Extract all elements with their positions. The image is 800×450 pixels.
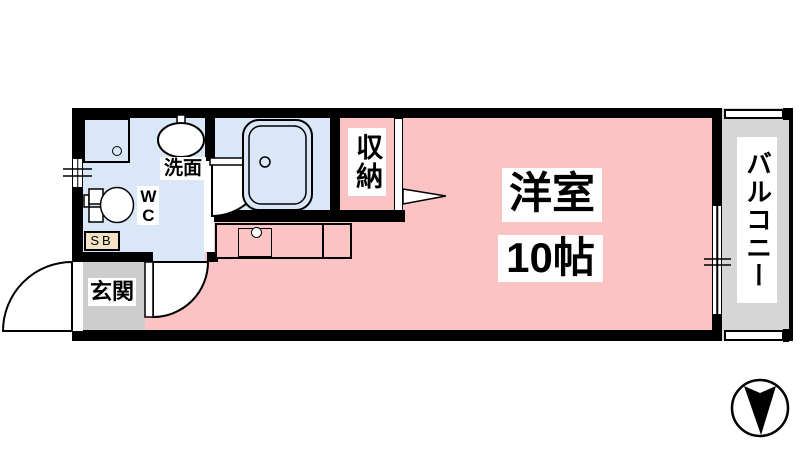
main-room-size-label: 10帖 xyxy=(498,235,603,282)
entrance-label: 玄関 xyxy=(88,278,136,306)
bathtub-icon xyxy=(243,120,312,210)
toilet-label: WC xyxy=(137,186,159,225)
balcony-label: バルコニー xyxy=(737,137,777,303)
floor-plan: 洋室 10帖 収納 玄関 洗面 WC SB バルコニー xyxy=(0,0,800,450)
entrance-door-swing-icon xyxy=(3,262,72,331)
window-tick-marks xyxy=(63,169,731,265)
plan-symbols xyxy=(0,0,800,450)
toilet-icon xyxy=(84,188,134,223)
main-room-door-swing-icon xyxy=(153,262,208,317)
main-room-name-label: 洋室 xyxy=(502,168,602,222)
shoe-box-label: SB xyxy=(86,233,118,249)
washbasin-icon xyxy=(158,115,204,157)
closet-label: 収納 xyxy=(348,128,386,196)
north-compass-icon xyxy=(732,380,788,436)
closet-door-marker-icon xyxy=(403,189,446,204)
main-room-door-panel xyxy=(145,262,153,317)
washbasin-label: 洗面 xyxy=(160,157,206,180)
